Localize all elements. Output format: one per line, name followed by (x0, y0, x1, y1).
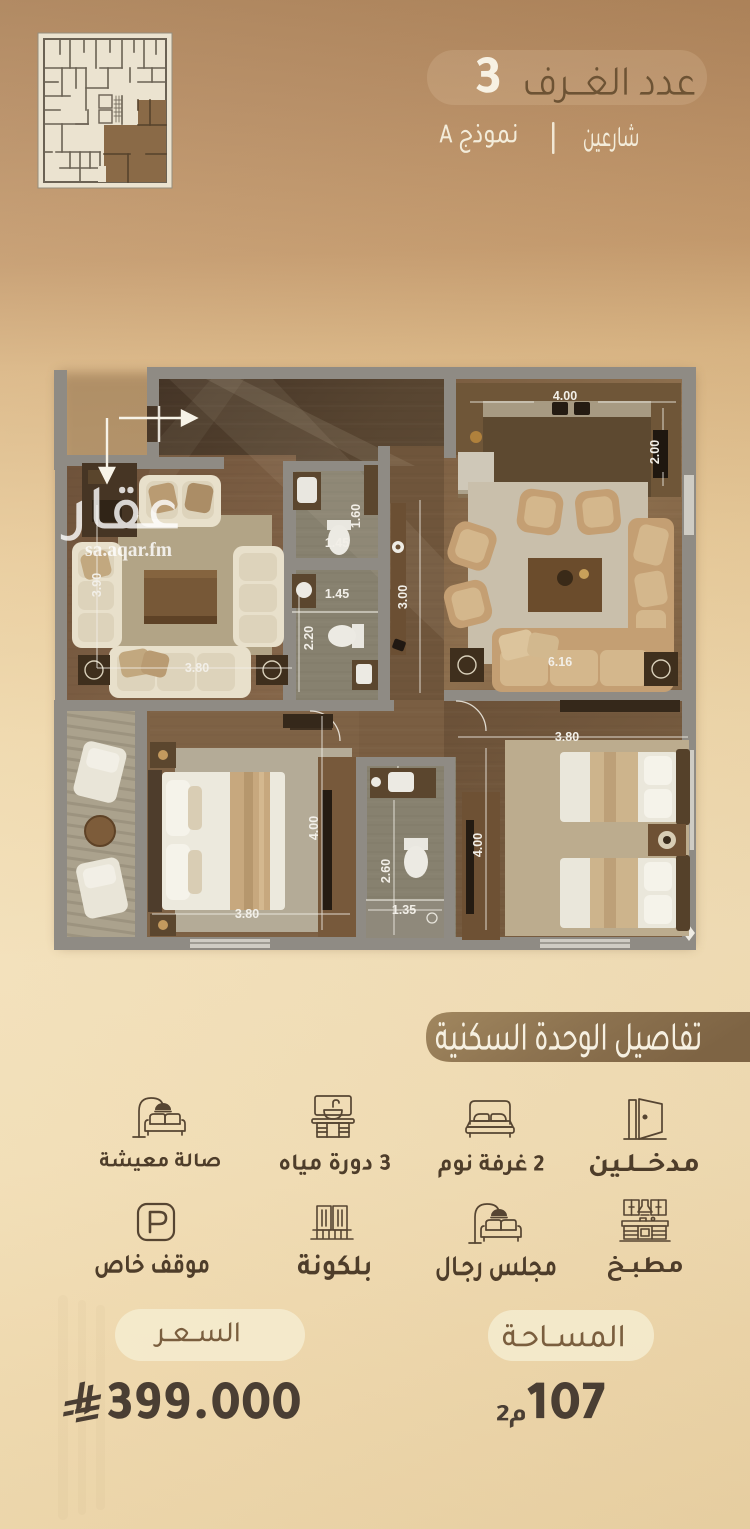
svg-text:3.00: 3.00 (396, 585, 410, 609)
svg-text:1.35: 1.35 (392, 903, 416, 917)
svg-text:1.60: 1.60 (349, 504, 363, 528)
svg-text:2.20: 2.20 (302, 626, 316, 650)
svg-text:4.00: 4.00 (471, 833, 485, 857)
svg-text:sa.aqar.fm: sa.aqar.fm (85, 540, 172, 561)
svg-text:2.60: 2.60 (379, 859, 393, 883)
svg-text:3.80: 3.80 (185, 661, 209, 675)
svg-text:2.00: 2.00 (648, 440, 662, 464)
svg-text:1.45: 1.45 (325, 587, 349, 601)
svg-text:3.80: 3.80 (235, 907, 259, 921)
svg-text:6.16: 6.16 (548, 655, 572, 669)
svg-text:4.00: 4.00 (307, 816, 321, 840)
svg-text:1.45: 1.45 (325, 536, 349, 550)
svg-text:4.00: 4.00 (553, 389, 577, 403)
svg-text:3.80: 3.80 (555, 730, 579, 744)
svg-text:3.90: 3.90 (90, 573, 104, 597)
